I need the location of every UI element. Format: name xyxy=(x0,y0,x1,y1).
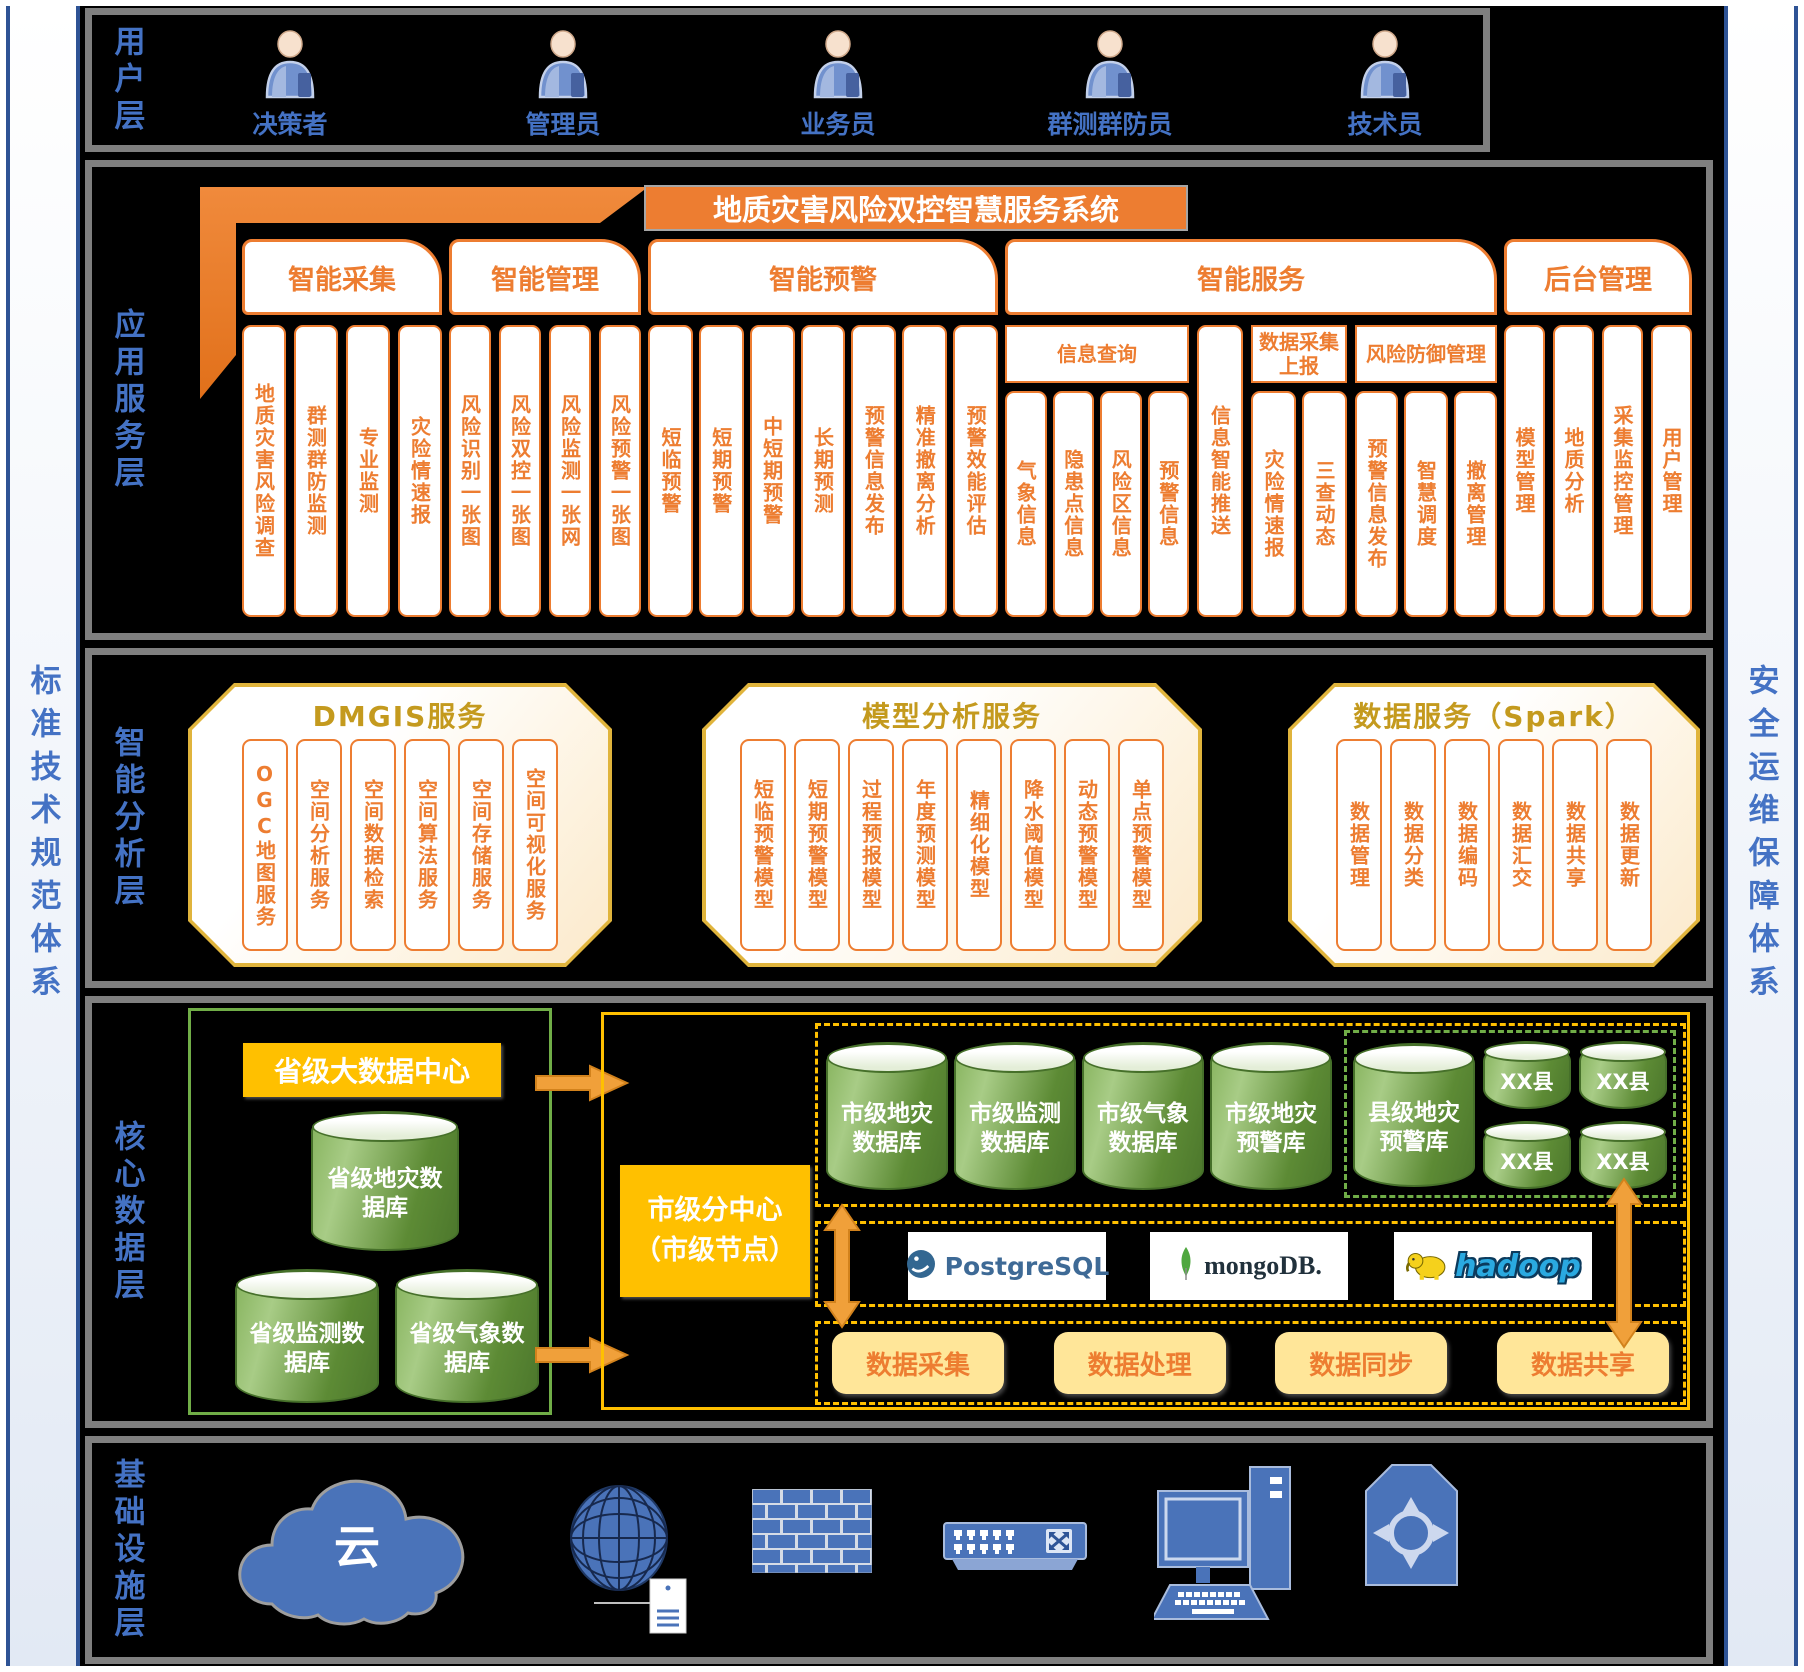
user-layer-section: 用户层 决策者 管理员 业务员 群测群防员 技术员 xyxy=(85,8,1490,152)
panel-title: 数据服务（Spark） xyxy=(1288,695,1700,735)
app-module-column: 风险识别一张图 xyxy=(449,325,491,617)
analysis-module-column: 空间分析服务 xyxy=(296,739,342,951)
analysis-module-column: 空间存储服务 xyxy=(458,739,504,951)
user-name: 管理员 xyxy=(478,105,648,141)
app-module-column: 地质分析 xyxy=(1553,325,1594,617)
app-module-column: 信息智能推送 xyxy=(1197,325,1243,617)
process-box: 数据同步 xyxy=(1275,1332,1447,1394)
firewall-icon xyxy=(752,1489,872,1577)
architecture-diagram: 标准技术规范体系 安全运维保障体系 用户层 决策者 管理员 业务员 群测群防员 … xyxy=(0,0,1804,1672)
infra-layer-label: 基础设施层 xyxy=(104,1443,150,1657)
app-module-column: 气象信息 xyxy=(1005,391,1047,617)
subgroup-info-query: 信息查询 气象信息 隐患点信息 风险区信息 预警信息 xyxy=(1005,325,1189,617)
switch-icon xyxy=(940,1513,1090,1579)
database-cylinder: 省级气象数据库 xyxy=(395,1269,539,1403)
user-name: 业务员 xyxy=(753,105,923,141)
app-module-column: 撤离管理 xyxy=(1454,391,1497,617)
system-title: 地质灾害风险双控智慧服务系统 xyxy=(644,185,1188,231)
mongodb-logo: mongoDB. xyxy=(1150,1232,1348,1300)
analysis-module-column: 数据编码 xyxy=(1444,739,1490,951)
database-cylinder: XX县 xyxy=(1579,1041,1667,1109)
person-icon xyxy=(531,84,595,103)
database-label: 市级监测数据库 xyxy=(960,1072,1070,1186)
analysis-module-column: 短期预警模型 xyxy=(794,739,840,951)
database-label: 县级地灾预警库 xyxy=(1359,1073,1469,1183)
app-module-column: 预警信息 xyxy=(1148,391,1190,617)
panel-data-service-spark: 数据服务（Spark） 数据管理 数据分类 数据编码 数据汇交 数据共享 数据更… xyxy=(1288,683,1700,967)
data-process-box: 数据采集 数据处理 数据同步 数据共享 xyxy=(815,1321,1686,1405)
app-module-column: 用户管理 xyxy=(1651,325,1692,617)
analysis-module-column: 精细化模型 xyxy=(956,739,1002,951)
subgroup-header: 数据采集上报 xyxy=(1251,325,1347,383)
app-module-column: 风险监测一张网 xyxy=(549,325,591,617)
group-header: 智能采集 xyxy=(242,239,442,315)
app-module-column: 预警信息发布 xyxy=(1355,391,1398,617)
analysis-module-column: 过程预报模型 xyxy=(848,739,894,951)
group-header: 智能预警 xyxy=(648,239,998,315)
cloud-icon: 云 xyxy=(232,1469,482,1629)
postgresql-icon xyxy=(905,1248,937,1284)
process-box: 数据采集 xyxy=(832,1332,1004,1394)
province-data-center-box: 省级大数据中心 省级地灾数据库 省级监测数据库 省级气象数据库 xyxy=(188,1008,552,1415)
user-layer-label: 用户层 xyxy=(104,15,150,145)
city-subcenter-line2: （市级节点） xyxy=(634,1231,796,1272)
app-module-column: 采集监控管理 xyxy=(1602,325,1643,617)
mongodb-leaf-icon xyxy=(1176,1246,1196,1286)
database-label: 市级地灾数据库 xyxy=(832,1072,942,1186)
user-technician: 技术员 xyxy=(1300,29,1470,141)
person-icon xyxy=(258,84,322,103)
user-name: 群测群防员 xyxy=(1025,105,1195,141)
app-layer-label: 应用服务层 xyxy=(104,167,150,633)
panel-model-analysis-service: 模型分析服务 短临预警模型 短期预警模型 过程预报模型 年度预测模型 精细化模型… xyxy=(702,683,1202,967)
app-module-column: 预警效能评估 xyxy=(953,325,998,617)
analysis-module-column: 数据更新 xyxy=(1606,739,1652,951)
app-module-column: 短临预警 xyxy=(648,325,693,617)
app-module-column: 灾险情速报 xyxy=(1251,391,1296,617)
globe-server-icon xyxy=(564,1483,696,1639)
app-module-column: 隐患点信息 xyxy=(1053,391,1095,617)
app-module-column: 专业监测 xyxy=(346,325,390,617)
infrastructure-layer-section: 基础设施层 云 xyxy=(85,1436,1713,1664)
panel-title: DMGIS服务 xyxy=(188,695,612,735)
group-smart-management: 智能管理 风险识别一张图 风险双控一张图 风险监测一张网 风险预警一张图 xyxy=(449,239,641,617)
panel-dmgis-service: DMGIS服务 OGC地图服务 空间分析服务 空间数据检索 空间算法服务 空间存… xyxy=(188,683,612,967)
hadoop-logo: hadoop xyxy=(1394,1232,1592,1300)
panel-title: 模型分析服务 xyxy=(702,695,1202,735)
desktop-computer-icon xyxy=(1154,1465,1294,1637)
user-administrator: 管理员 xyxy=(478,29,648,141)
database-label: 省级气象数据库 xyxy=(401,1299,533,1399)
app-module-column: 预警信息发布 xyxy=(851,325,896,617)
city-node-box: 市级分中心 （市级节点） 市级地灾数据库 市级监测数据库 市级气象数据库 市级地… xyxy=(601,1012,1690,1410)
database-label: XX县 xyxy=(1585,1059,1661,1105)
analysis-module-column: 数据分类 xyxy=(1390,739,1436,951)
subgroup-data-report: 数据采集上报 灾险情速报 三查动态 xyxy=(1251,325,1347,617)
group-smart-service: 智能服务 信息查询 气象信息 隐患点信息 风险区信息 预警信息 信息智能推送 数… xyxy=(1005,239,1497,617)
database-cylinder: XX县 xyxy=(1483,1041,1571,1109)
app-module-column: 短期预警 xyxy=(699,325,744,617)
postgresql-logo: PostgreSQL xyxy=(908,1232,1106,1300)
right-sidebar-label: 安全运维保障体系 xyxy=(1739,664,1784,1008)
hadoop-elephant-icon xyxy=(1405,1248,1447,1284)
analysis-module-column: 动态预警模型 xyxy=(1064,739,1110,951)
left-sidebar-label: 标准技术规范体系 xyxy=(21,664,66,1008)
app-module-column: 群测群防监测 xyxy=(294,325,338,617)
app-module-column: 智慧调度 xyxy=(1404,391,1447,617)
analysis-module-column: 短临预警模型 xyxy=(740,739,786,951)
group-header: 智能管理 xyxy=(449,239,641,315)
person-icon xyxy=(1078,84,1142,103)
app-module-column: 灾险情速报 xyxy=(398,325,442,617)
database-cylinder: 省级监测数据库 xyxy=(235,1269,379,1403)
data-layer-label: 核心数据层 xyxy=(104,1003,150,1421)
group-smart-warning: 智能预警 短临预警 短期预警 中短期预警 长期预测 预警信息发布 精准撤离分析 … xyxy=(648,239,998,617)
postgresql-wordmark: PostgreSQL xyxy=(945,1252,1110,1281)
vertical-double-arrow-icon xyxy=(1604,1177,1644,1353)
app-module-column: 风险预警一张图 xyxy=(599,325,641,617)
user-operator: 业务员 xyxy=(753,29,923,141)
router-icon xyxy=(1364,1461,1459,1591)
database-cylinder: 市级气象数据库 xyxy=(1082,1042,1204,1190)
database-label: 省级监测数据库 xyxy=(241,1299,373,1399)
process-box: 数据处理 xyxy=(1054,1332,1226,1394)
analysis-module-column: 降水阈值模型 xyxy=(1010,739,1056,951)
app-module-column: 中短期预警 xyxy=(750,325,795,617)
county-databases-box: 县级地灾预警库 XX县 XX县 XX县 XX县 xyxy=(1344,1030,1676,1198)
database-label: XX县 xyxy=(1489,1139,1565,1185)
user-mass-monitor: 群测群防员 xyxy=(1025,29,1195,141)
app-module-column: 地质灾害风险调查 xyxy=(242,325,286,617)
data-layer-section: 核心数据层 省级大数据中心 省级地灾数据库 省级监测数据库 省级气象数据库 市级… xyxy=(85,996,1713,1428)
person-icon xyxy=(1353,84,1417,103)
mongodb-wordmark: mongoDB. xyxy=(1204,1251,1322,1281)
group-header: 后台管理 xyxy=(1504,239,1692,315)
analysis-module-column: 数据共享 xyxy=(1552,739,1598,951)
database-cylinder: 市级监测数据库 xyxy=(954,1042,1076,1190)
left-sidebar: 标准技术规范体系 xyxy=(6,6,80,1666)
database-label: XX县 xyxy=(1489,1059,1565,1105)
person-icon xyxy=(806,84,870,103)
city-subcenter-line1: 市级分中心 xyxy=(648,1191,783,1232)
analysis-module-column: OGC地图服务 xyxy=(242,739,288,951)
city-subcenter-label: 市级分中心 （市级节点） xyxy=(620,1165,810,1297)
user-name: 决策者 xyxy=(205,105,375,141)
analysis-module-column: 空间算法服务 xyxy=(404,739,450,951)
application-service-layer-section: 应用服务层 地质灾害风险双控智慧服务系统 智能采集 地质灾害风险调查 群测群防监… xyxy=(85,160,1713,640)
province-center-label: 省级大数据中心 xyxy=(243,1043,501,1097)
app-module-column: 精准撤离分析 xyxy=(902,325,947,617)
hadoop-wordmark: hadoop xyxy=(1455,1249,1581,1284)
middleware-box: PostgreSQL mongoDB. hadoop xyxy=(815,1221,1686,1307)
analysis-module-column: 空间可视化服务 xyxy=(512,739,558,951)
analysis-module-column: 单点预警模型 xyxy=(1118,739,1164,951)
app-module-column: 三查动态 xyxy=(1302,391,1347,617)
right-sidebar: 安全运维保障体系 xyxy=(1724,6,1798,1666)
analysis-layer-section: 智能分析层 DMGIS服务 OGC地图服务 空间分析服务 空间数据检索 空间算法… xyxy=(85,648,1713,988)
group-smart-collection: 智能采集 地质灾害风险调查 群测群防监测 专业监测 灾险情速报 xyxy=(242,239,442,617)
database-cylinder: 市级地灾预警库 xyxy=(1210,1042,1332,1190)
analysis-module-column: 数据管理 xyxy=(1336,739,1382,951)
city-databases-box: 市级地灾数据库 市级监测数据库 市级气象数据库 市级地灾预警库 县级地灾预警库 xyxy=(815,1023,1686,1207)
analysis-layer-label: 智能分析层 xyxy=(104,655,150,981)
analysis-module-column: 空间数据检索 xyxy=(350,739,396,951)
analysis-module-column: 年度预测模型 xyxy=(902,739,948,951)
user-name: 技术员 xyxy=(1300,105,1470,141)
subgroup-header: 信息查询 xyxy=(1005,325,1189,383)
app-module-column: 风险双控一张图 xyxy=(499,325,541,617)
subgroup-risk-defense: 风险防御管理 预警信息发布 智慧调度 撤离管理 xyxy=(1355,325,1497,617)
database-cylinder: 市级地灾数据库 xyxy=(826,1042,948,1190)
group-header: 智能服务 xyxy=(1005,239,1497,315)
database-label: 市级气象数据库 xyxy=(1088,1072,1198,1186)
database-cylinder: 省级地灾数据库 xyxy=(311,1111,459,1251)
database-label: 市级地灾预警库 xyxy=(1216,1072,1326,1186)
vertical-double-arrow-icon xyxy=(822,1203,862,1333)
database-label: 省级地灾数据库 xyxy=(317,1141,453,1247)
group-backend-management: 后台管理 模型管理 地质分析 采集监控管理 用户管理 xyxy=(1504,239,1692,617)
app-module-column: 风险区信息 xyxy=(1100,391,1142,617)
app-module-column: 长期预测 xyxy=(801,325,846,617)
database-cylinder: 县级地灾预警库 xyxy=(1353,1043,1475,1187)
subgroup-header: 风险防御管理 xyxy=(1355,325,1497,383)
user-decision-maker: 决策者 xyxy=(205,29,375,141)
database-cylinder: XX县 xyxy=(1483,1121,1571,1189)
analysis-module-column: 数据汇交 xyxy=(1498,739,1544,951)
cloud-label: 云 xyxy=(232,1469,482,1629)
app-module-column: 模型管理 xyxy=(1504,325,1545,617)
